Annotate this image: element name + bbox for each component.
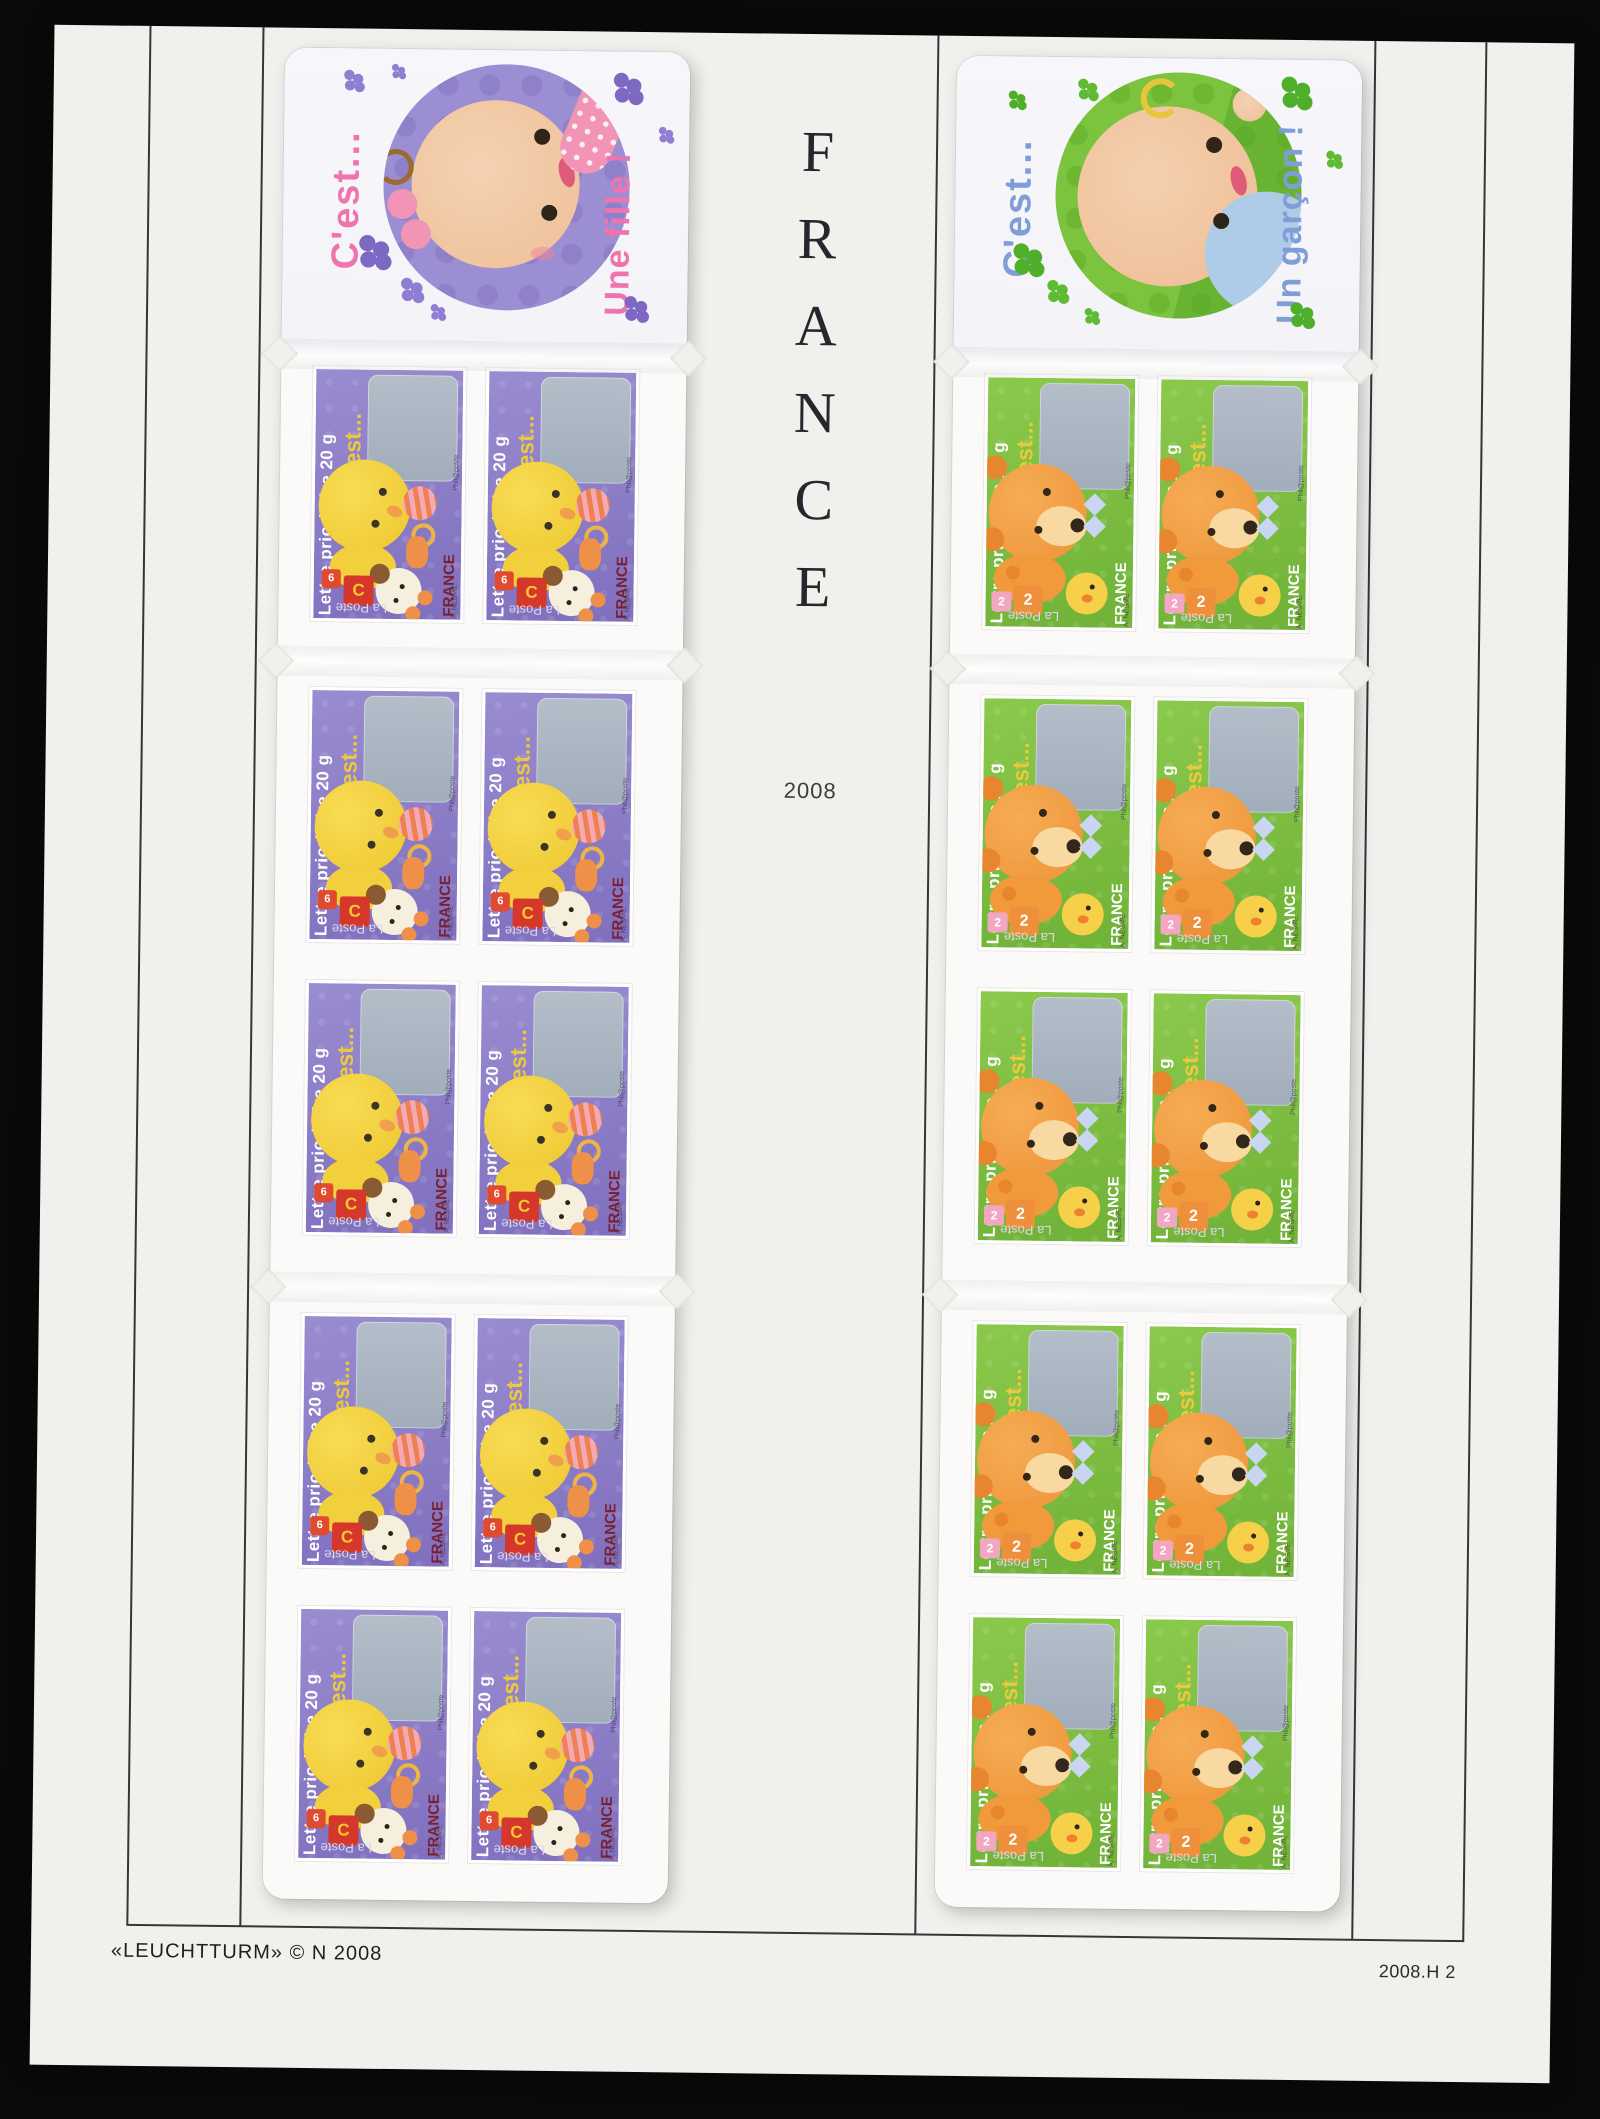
giraffe-toy — [398, 1150, 420, 1182]
chick-toy-beak — [1074, 1208, 1085, 1216]
bear-eye — [1192, 1768, 1200, 1776]
artist-text: A. NESME — [1281, 1831, 1289, 1869]
clover-decoration — [1085, 308, 1093, 316]
giraffe-toy — [391, 1776, 413, 1808]
chick-toy-eye — [1251, 1534, 1256, 1539]
philaposte-text: Phil@poste — [1286, 1376, 1295, 1448]
artist-text: A. NESME — [624, 583, 632, 621]
stamp-cest-un-garcon: C'est... Lettre prioritaire 20 g 2 2 La … — [1151, 697, 1307, 954]
bear-eye — [1030, 847, 1038, 855]
baby-eye — [534, 129, 550, 145]
giraffe-toy — [402, 857, 424, 889]
frame-line-bottom — [126, 1924, 1464, 1942]
la-poste-text: La Poste — [485, 1549, 561, 1565]
la-poste-text: La Poste — [1157, 1557, 1233, 1573]
chick-eye — [544, 1104, 552, 1112]
cover-title-text: Un garçon ! — [1270, 84, 1321, 325]
chick-eye — [537, 1730, 545, 1738]
stamp-pane: C'est... Lettre prioritaire 20 g C 6 La … — [263, 1287, 675, 1904]
frame-line-right-outer — [1462, 42, 1487, 1941]
chick-toy-eye — [1255, 1201, 1260, 1206]
bear-eye — [1043, 488, 1051, 496]
la-poste-text: La Poste — [1164, 931, 1240, 947]
puppy-eye — [565, 1200, 570, 1205]
stamp-cest-une-fille: C'est... Lettre prioritaire 20 g C 6 La … — [303, 980, 459, 1237]
puppy-paw — [401, 927, 416, 942]
stamp-cest-un-garcon: C'est... Lettre prioritaire 20 g 2 2 La … — [1144, 1323, 1300, 1580]
la-poste-text: La Poste — [984, 1555, 1060, 1571]
philaposte-text: Phil@poste — [1294, 750, 1303, 822]
stamp-cest-un-garcon: C'est... Lettre prioritaire 20 g 2 2 La … — [982, 374, 1138, 631]
booklet-cover-une-fille: C'est... Une fille ! — [282, 48, 691, 359]
bear-ear — [983, 455, 1007, 479]
la-poste-text: La Poste — [323, 600, 399, 616]
philaposte-text: Phil@poste — [1290, 1043, 1299, 1115]
stamp-cest-une-fille: C'est... Lettre prioritaire 20 g C 6 La … — [476, 982, 632, 1239]
puppy-paw — [406, 1537, 421, 1552]
stamp-cest-une-fille: C'est... Lettre prioritaire 20 g C 6 La … — [472, 1315, 628, 1572]
stamp-pane: C'est... Lettre prioritaire 20 g 2 2 La … — [942, 669, 1355, 1300]
bear-spot — [1164, 1807, 1178, 1821]
clover-decoration — [1009, 90, 1018, 99]
chick-toy-beak — [1070, 1541, 1081, 1549]
chick-toy-beak — [1255, 596, 1266, 604]
chick-eye — [537, 1136, 545, 1144]
country-letter: N — [782, 369, 847, 457]
philaposte-text: Phil@poste — [445, 1033, 454, 1105]
bear-eye — [1039, 809, 1047, 817]
fold-crease — [270, 1272, 675, 1307]
chick-toy-beak — [1251, 917, 1262, 925]
philaposte-text: Phil@poste — [441, 1366, 450, 1438]
puppy-paw — [579, 1539, 594, 1554]
flower-decoration — [431, 304, 439, 312]
philaposte-text: Phil@poste — [614, 1368, 623, 1440]
clover-decoration — [1078, 79, 1089, 90]
philaposte-text: Phil@poste — [618, 1035, 627, 1107]
bear-eye — [1200, 1142, 1208, 1150]
clover-decoration — [1047, 280, 1058, 291]
stamp-pane: C'est... Lettre prioritaire 20 g 2 2 La … — [935, 1295, 1347, 1912]
artist-text: A. NESME — [609, 1823, 617, 1861]
bear-ear — [1156, 457, 1180, 481]
bear-ear — [976, 1069, 1000, 1093]
la-poste-text: La Poste — [988, 1222, 1064, 1238]
stamp-cest-un-garcon: C'est... Lettre prioritaire 20 g 2 2 La … — [971, 1321, 1127, 1578]
album-page: F R A N C E 2008 «LEUCHTTURM» © N 2008 2… — [30, 25, 1575, 2083]
bear-eye — [1201, 1730, 1209, 1738]
stamp-pane: C'est... Lettre prioritaire 20 g C 6 La … — [270, 661, 683, 1292]
cover-title-text: Une fille ! — [598, 75, 649, 316]
striped-rattle-ball — [560, 1728, 594, 1762]
bear-ear — [971, 1402, 995, 1426]
puppy-paw — [394, 1553, 409, 1568]
puppy-eye — [569, 907, 574, 912]
clover-decoration — [1013, 243, 1029, 259]
bear-eye — [1207, 528, 1215, 536]
puppy-eye — [573, 586, 578, 591]
baby-eye — [1213, 213, 1229, 229]
bear-eye — [1019, 1766, 1027, 1774]
stamp-cest-un-garcon: C'est... Lettre prioritaire 20 g 2 2 La … — [978, 695, 1134, 952]
puppy-paw — [575, 1832, 590, 1847]
striped-rattle-ball — [568, 1102, 602, 1136]
artist-text: A. NESME — [1116, 1203, 1124, 1241]
chick-toy-beak — [1239, 1836, 1250, 1844]
puppy-eye — [392, 1198, 397, 1203]
country-letter: F — [785, 108, 850, 196]
la-poste-text: La Poste — [316, 1214, 392, 1230]
puppy-eye — [557, 1826, 562, 1831]
puppy-paw — [578, 608, 593, 623]
flower-decoration — [359, 235, 375, 251]
bear-ear — [1141, 1697, 1165, 1721]
artist-text: A. NESME — [617, 1197, 625, 1235]
toy-block-digit: 6 — [491, 892, 510, 911]
baby-boy-illustration — [1054, 71, 1303, 320]
puppy-paw — [567, 1555, 582, 1570]
flower-decoration — [344, 70, 355, 81]
chick-toy-eye — [1259, 908, 1264, 913]
baby-girl-illustration — [382, 63, 631, 312]
bear-eye — [1023, 1473, 1031, 1481]
country-letter: R — [784, 195, 849, 283]
chick-eye — [356, 1760, 364, 1768]
clover-decoration — [1326, 151, 1335, 160]
chick-eye — [371, 520, 379, 528]
toy-block-digit: 6 — [314, 1183, 333, 1202]
frame-line-left-outer — [126, 26, 151, 1925]
chick-eye — [540, 1437, 548, 1445]
la-poste-text: La Poste — [489, 1216, 565, 1232]
puppy-paw — [574, 929, 589, 944]
bear-eye — [1203, 849, 1211, 857]
la-poste-text: La Poste — [308, 1840, 384, 1856]
stamp-cest-une-fille: C'est... Lettre prioritaire 20 g C 6 La … — [295, 1606, 451, 1863]
bear-eye — [1031, 1435, 1039, 1443]
chick-toy-eye — [1086, 905, 1091, 910]
bear-ear — [1149, 1071, 1173, 1095]
artist-text: A. NESME — [436, 1821, 444, 1859]
artist-text: A. NESME — [1108, 1829, 1116, 1867]
toy-block-digit: 6 — [307, 1809, 326, 1828]
chick-eye — [544, 522, 552, 530]
puppy-paw — [583, 1206, 598, 1221]
artist-text: A. NESME — [1285, 1538, 1293, 1576]
flower-decoration — [401, 278, 413, 290]
chick-toy-beak — [1247, 1210, 1258, 1218]
stamp-cest-un-garcon: C'est... Lettre prioritaire 20 g 2 2 La … — [1148, 990, 1304, 1247]
giraffe-toy — [567, 1485, 589, 1517]
year-label: 2008 — [767, 778, 853, 805]
chick-toy-eye — [1263, 587, 1268, 592]
la-poste-text: La Poste — [995, 608, 1071, 624]
bear-spot — [1002, 886, 1016, 900]
stamp-cest-une-fille: C'est... Lettre prioritaire 20 g C 6 La … — [299, 1313, 455, 1570]
page-reference: 2008.H 2 — [1329, 1961, 1456, 1984]
booklet-cover-un-garcon: C'est... Un garçon ! — [953, 56, 1362, 367]
chick-eye — [552, 490, 560, 498]
chick-toy-eye — [1075, 1824, 1080, 1829]
la-poste-text: La Poste — [496, 602, 572, 618]
chick-toy-eye — [1082, 1198, 1087, 1203]
flower-decoration — [392, 64, 399, 71]
stamp-cest-une-fille: C'est... Lettre prioritaire 20 g C 6 La … — [310, 366, 466, 623]
artist-text: A. NESME — [1292, 912, 1300, 950]
stamp-cest-une-fille: C'est... Lettre prioritaire 20 g C 6 La … — [483, 368, 639, 625]
bear-spot — [994, 1512, 1008, 1526]
toy-block-digit: 6 — [322, 569, 341, 588]
philaposte-text: Phil@poste — [1113, 1374, 1122, 1446]
philaposte-text: Phil@poste — [1110, 1667, 1119, 1739]
bear-spot — [1179, 568, 1193, 582]
puppy-paw — [410, 1204, 425, 1219]
bear-spot — [998, 1179, 1012, 1193]
chick-eye — [379, 488, 387, 496]
chick-eye — [367, 841, 375, 849]
chick-eye — [540, 843, 548, 851]
la-poste-text: La Poste — [1168, 610, 1244, 626]
country-letter: E — [780, 543, 845, 631]
la-poste-text: La Poste — [312, 1547, 388, 1563]
bear-spot — [1175, 889, 1189, 903]
flower-decoration — [614, 73, 629, 88]
bear-ear — [1144, 1404, 1168, 1428]
philaposte-text: Phil@poste — [1298, 429, 1307, 501]
artist-text: A. NESME — [620, 904, 628, 942]
puppy-paw — [402, 1830, 417, 1845]
giraffe-toy — [406, 536, 428, 568]
giraffe-toy — [571, 1152, 593, 1184]
country-letter: A — [783, 282, 848, 370]
puppy-paw — [405, 606, 420, 621]
frame-line-center — [914, 36, 939, 1935]
toy-block-digit: 6 — [483, 1518, 502, 1537]
fold-crease — [281, 339, 686, 374]
frame-line-left-inner — [239, 27, 264, 1926]
artist-text: A. NESME — [444, 1195, 452, 1233]
chick-toy-eye — [1078, 1531, 1083, 1536]
fold-crease — [942, 1280, 1347, 1315]
giraffe-toy — [575, 859, 597, 891]
artist-text: A. NESME — [613, 1530, 621, 1568]
country-title-vertical: F R A N C E — [780, 108, 850, 631]
puppy-paw — [587, 913, 602, 928]
bear-ear — [979, 776, 1003, 800]
puppy-paw — [590, 592, 605, 607]
toy-block-digit: 6 — [318, 890, 337, 909]
stamp-cest-une-fille: C'est... Lettre prioritaire 20 g C 6 La … — [306, 687, 462, 944]
giraffe-toy — [394, 1483, 416, 1515]
bear-eye — [1035, 1102, 1043, 1110]
artist-text: A. NESME — [451, 581, 459, 619]
puppy-eye — [400, 584, 405, 589]
booklet-un-garcon: C'est... Un garçon ! — [935, 56, 1363, 1912]
chick-eye — [360, 1467, 368, 1475]
bear-ear — [1152, 778, 1176, 802]
philaposte-text: Phil@poste — [438, 1659, 447, 1731]
chick-eye — [367, 1435, 375, 1443]
puppy-paw — [390, 1846, 405, 1861]
chick-toy — [1231, 1188, 1274, 1231]
puppy-paw — [571, 1222, 586, 1237]
baby-cheek — [531, 247, 555, 261]
striped-rattle-ball — [399, 807, 433, 841]
la-poste-text: La Poste — [319, 921, 395, 937]
toy-block-digit: 6 — [310, 1516, 329, 1535]
stamp-cest-un-garcon: C'est... Lettre prioritaire 20 g 2 2 La … — [1140, 1616, 1296, 1873]
giraffe-toy — [564, 1778, 586, 1810]
artist-text: A. NESME — [1289, 1205, 1297, 1243]
fold-crease — [950, 654, 1355, 689]
philaposte-text: Phil@poste — [1283, 1669, 1292, 1741]
stamp-pane: C'est... Lettre prioritaire 20 g C 6 La … — [278, 354, 687, 666]
puppy-paw — [398, 1220, 413, 1235]
chick-toy-beak — [1066, 1834, 1077, 1842]
toy-block-digit: 6 — [495, 571, 514, 590]
chick-eye — [375, 809, 383, 817]
la-poste-text: La Poste — [1153, 1850, 1229, 1866]
stamp-cest-une-fille: C'est... Lettre prioritaire 20 g C 6 La … — [468, 1608, 624, 1865]
bear-eye — [1204, 1437, 1212, 1445]
puppy-eye — [388, 1531, 393, 1536]
giraffe-toy — [579, 538, 601, 570]
bear-ear — [968, 1695, 992, 1719]
country-letter: C — [781, 456, 846, 544]
bear-eye — [1028, 1728, 1036, 1736]
chick-eye — [533, 1469, 541, 1477]
chick-eye — [529, 1762, 537, 1770]
artist-text: A. NESME — [440, 1528, 448, 1566]
toy-block-digit: 6 — [487, 1185, 506, 1204]
bear-spot — [1167, 1514, 1181, 1528]
bear-eye — [1208, 1104, 1216, 1112]
philaposte-text: Phil@poste — [1121, 748, 1130, 820]
philaposte-text: Phil@poste — [1117, 1041, 1126, 1113]
philaposte-text: Phil@poste — [449, 740, 458, 812]
flower-decoration — [624, 296, 637, 308]
bear-eye — [1034, 526, 1042, 534]
philaposte-text: Phil@poste — [1125, 427, 1134, 499]
stamp-cest-un-garcon: C'est... Lettre prioritaire 20 g 2 2 La … — [1155, 376, 1311, 633]
chick-toy-beak — [1082, 594, 1093, 602]
chick-eye — [364, 1728, 372, 1736]
stamp-cest-un-garcon: C'est... Lettre prioritaire 20 g 2 2 La … — [967, 1614, 1123, 1871]
flower-decoration — [659, 127, 667, 135]
la-poste-text: La Poste — [991, 929, 1067, 945]
chick-eye — [548, 811, 556, 819]
artist-text: A. NESME — [447, 902, 455, 940]
bear-spot — [991, 1805, 1005, 1819]
artist-text: A. NESME — [1112, 1536, 1120, 1574]
artist-text: A. NESME — [1123, 589, 1131, 627]
philaposte-text: Phil@poste — [453, 419, 462, 491]
puppy-paw — [414, 911, 429, 926]
philaposte-text: Phil@poste — [622, 742, 631, 814]
stamp-cest-un-garcon: C'est... Lettre prioritaire 20 g 2 2 La … — [975, 988, 1131, 1245]
booklet-une-fille: C'est... Une fille ! — [263, 48, 691, 1904]
toy-block-digit: 6 — [479, 1811, 498, 1830]
chick-eye — [364, 1134, 372, 1142]
chick-toy — [1238, 574, 1281, 617]
bear-spot — [1006, 565, 1020, 579]
clover-decoration — [1281, 76, 1297, 92]
chick-toy-beak — [1243, 1543, 1254, 1551]
puppy-eye — [561, 1533, 566, 1538]
artist-text: A. NESME — [1296, 591, 1304, 629]
chick-toy-eye — [1248, 1827, 1253, 1832]
la-poste-text: La Poste — [980, 1848, 1056, 1864]
chick-toy-beak — [1078, 915, 1089, 923]
bear-eye — [1027, 1140, 1035, 1148]
bear-spot — [1171, 1182, 1185, 1196]
publisher-credit: «LEUCHTTURM» © N 2008 — [111, 1940, 383, 1966]
stamp-cest-une-fille: C'est... Lettre prioritaire 20 g C 6 La … — [479, 689, 635, 946]
bear-eye — [1196, 1475, 1204, 1483]
stamp-pane: C'est... Lettre prioritaire 20 g 2 2 La … — [950, 362, 1359, 674]
fold-crease — [278, 646, 683, 681]
puppy-eye — [396, 905, 401, 910]
bear-eye — [1212, 811, 1220, 819]
philaposte-text: Phil@poste — [611, 1661, 620, 1733]
chick-toy-eye — [1090, 584, 1095, 589]
puppy-eye — [385, 1824, 390, 1829]
clover-decoration — [1290, 302, 1303, 314]
la-poste-text: La Poste — [481, 1842, 557, 1858]
baby-eye — [1206, 137, 1222, 153]
philaposte-text: Phil@poste — [626, 421, 635, 493]
la-poste-text: La Poste — [1161, 1224, 1237, 1240]
bear-eye — [1216, 490, 1224, 498]
la-poste-text: La Poste — [492, 923, 568, 939]
baby-eye — [541, 205, 557, 221]
pink-bow — [387, 189, 417, 219]
chick-eye — [371, 1102, 379, 1110]
artist-text: A. NESME — [1119, 910, 1127, 948]
puppy-paw — [417, 590, 432, 605]
fold-crease — [953, 347, 1358, 382]
